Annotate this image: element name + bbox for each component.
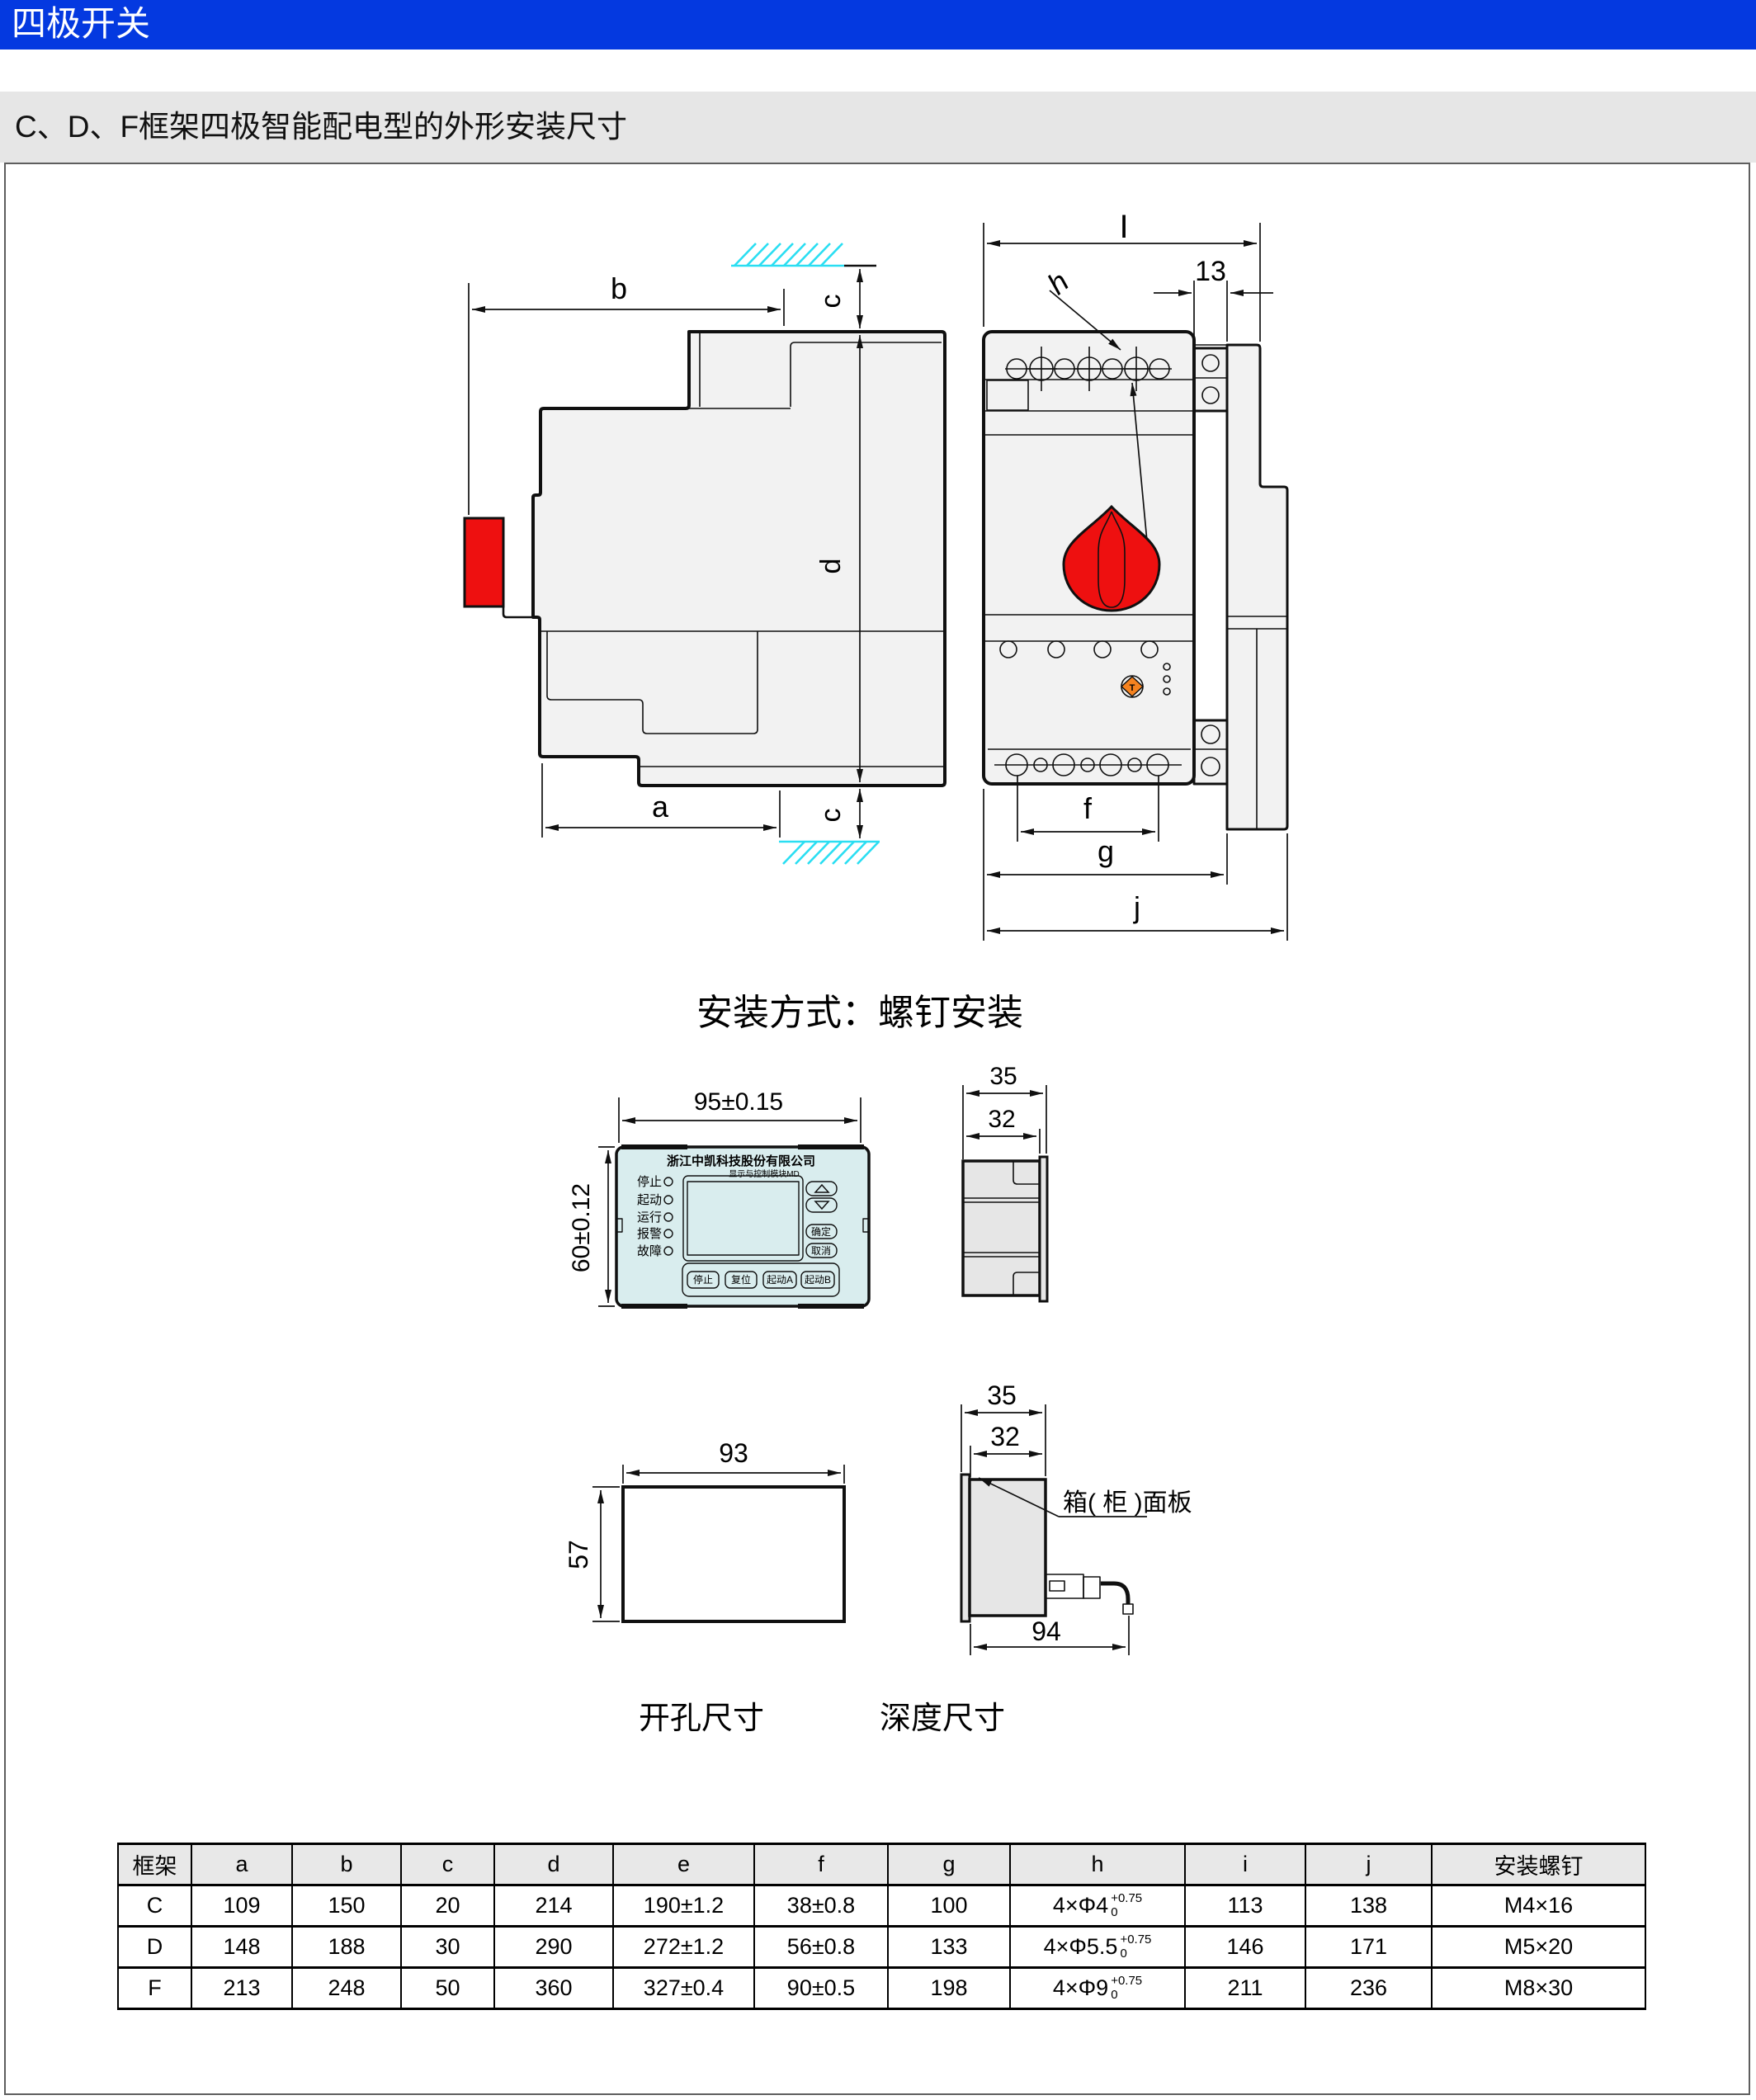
svg-text:确定: 确定 <box>811 1225 831 1238</box>
mount-method-caption: 安装方式：螺钉安装 <box>696 993 1023 1033</box>
dim-label-c-top: c <box>815 295 847 309</box>
operating-handle <box>465 518 503 606</box>
panel-module: 显示与控制模块MD <box>729 1168 800 1179</box>
dim-label-b: b <box>611 271 627 305</box>
panel-side-view: 35 32 <box>963 1063 1047 1301</box>
col-header-e: e <box>613 1844 754 1885</box>
dim-label-d: d <box>815 559 847 574</box>
dim-label-j: j <box>1133 890 1140 924</box>
dim-label-panel-depth-total: 35 <box>989 1063 1017 1090</box>
cutout-view: 93 57 <box>564 1438 844 1621</box>
table-row-C: C 109 150 20 214 190±1.2 38±0.8 100 4×Φ4… <box>118 1885 1645 1927</box>
dim-label-panel-depth-body: 32 <box>988 1106 1015 1133</box>
wall-hatch-bottom <box>779 842 880 864</box>
svg-text:起动: 起动 <box>637 1193 662 1207</box>
panel-company: 浙江中凯科技股份有限公司 <box>667 1154 815 1168</box>
dim-label-cutout-width: 93 <box>719 1438 748 1468</box>
svg-text:起动B: 起动B <box>805 1274 831 1286</box>
hole-spec-F: 4×Φ9+0.750 <box>1010 1968 1185 2009</box>
cabinet-panel-label: 箱( 柜 )面板 <box>1063 1489 1192 1517</box>
svg-text:起动A: 起动A <box>767 1274 793 1286</box>
dim-label-13: 13 <box>1195 256 1226 287</box>
cutout-caption: 开孔尺寸 <box>639 1701 764 1736</box>
svg-text:取消: 取消 <box>811 1245 831 1257</box>
dim-label-g: g <box>1097 834 1114 868</box>
dim-label-I: I <box>1119 209 1128 245</box>
dim-label-depth-94: 94 <box>1031 1616 1061 1646</box>
hole-spec-D: 4×Φ5.5+0.750 <box>1010 1927 1185 1968</box>
test-button-label: T <box>1130 683 1135 693</box>
front-view: h T <box>984 209 1287 941</box>
panel-front-view: 95±0.15 60±0.12 浙江中凯科技股份有限公司 显示与控制模块MD 停… <box>568 1088 869 1306</box>
table-header-row: 框架 a b c d e f g h i j 安装螺钉 <box>118 1844 1645 1885</box>
dim-label-c-bottom: c <box>815 809 847 823</box>
dim-label-cutout-height: 57 <box>564 1540 593 1569</box>
depth-view: 35 32 箱( 柜 )面板 94 <box>961 1380 1192 1655</box>
dim-label-panel-width: 95±0.15 <box>694 1088 783 1116</box>
col-header-c: c <box>401 1844 494 1885</box>
col-header-h: h <box>1010 1844 1185 1885</box>
col-header-i: i <box>1185 1844 1305 1885</box>
dim-label-depth-total: 35 <box>987 1380 1017 1410</box>
col-header-frame: 框架 <box>118 1844 191 1885</box>
table-row-D: D 148 188 30 290 272±1.2 56±0.8 133 4×Φ5… <box>118 1927 1645 1968</box>
technical-drawing: b c d c a <box>0 0 1756 1840</box>
hole-spec-C: 4×Φ4+0.750 <box>1010 1885 1185 1927</box>
datasheet-page: 四极开关 C、D、F框架四极智能配电型的外形安装尺寸 <box>0 0 1756 2100</box>
svg-text:停止: 停止 <box>637 1175 662 1189</box>
svg-text:故障: 故障 <box>637 1243 662 1258</box>
svg-text:复位: 复位 <box>731 1273 751 1286</box>
test-button: T <box>1121 676 1143 697</box>
svg-text:运行: 运行 <box>637 1210 662 1225</box>
depth-caption: 深度尺寸 <box>880 1701 1005 1736</box>
dim-label-f: f <box>1083 791 1093 825</box>
col-header-j: j <box>1305 1844 1432 1885</box>
table-row-F: F 213 248 50 360 327±0.4 90±0.5 198 4×Φ9… <box>118 1968 1645 2009</box>
dim-label-h: h <box>1041 264 1075 300</box>
wall-hatch-top <box>731 243 844 266</box>
col-header-b: b <box>292 1844 401 1885</box>
svg-text:报警: 报警 <box>637 1227 662 1241</box>
dimension-table: 框架 a b c d e f g h i j 安装螺钉 C 109 150 20… <box>117 1843 1646 2010</box>
col-header-g: g <box>888 1844 1010 1885</box>
svg-text:停止: 停止 <box>693 1273 713 1286</box>
dim-label-panel-height: 60±0.12 <box>568 1183 595 1272</box>
col-header-screw: 安装螺钉 <box>1432 1844 1645 1885</box>
col-header-f: f <box>754 1844 888 1885</box>
dim-label-depth-body: 32 <box>990 1422 1020 1451</box>
side-view: b c d c a <box>465 243 945 864</box>
col-header-d: d <box>494 1844 613 1885</box>
col-header-a: a <box>191 1844 292 1885</box>
dim-label-a: a <box>652 790 669 823</box>
